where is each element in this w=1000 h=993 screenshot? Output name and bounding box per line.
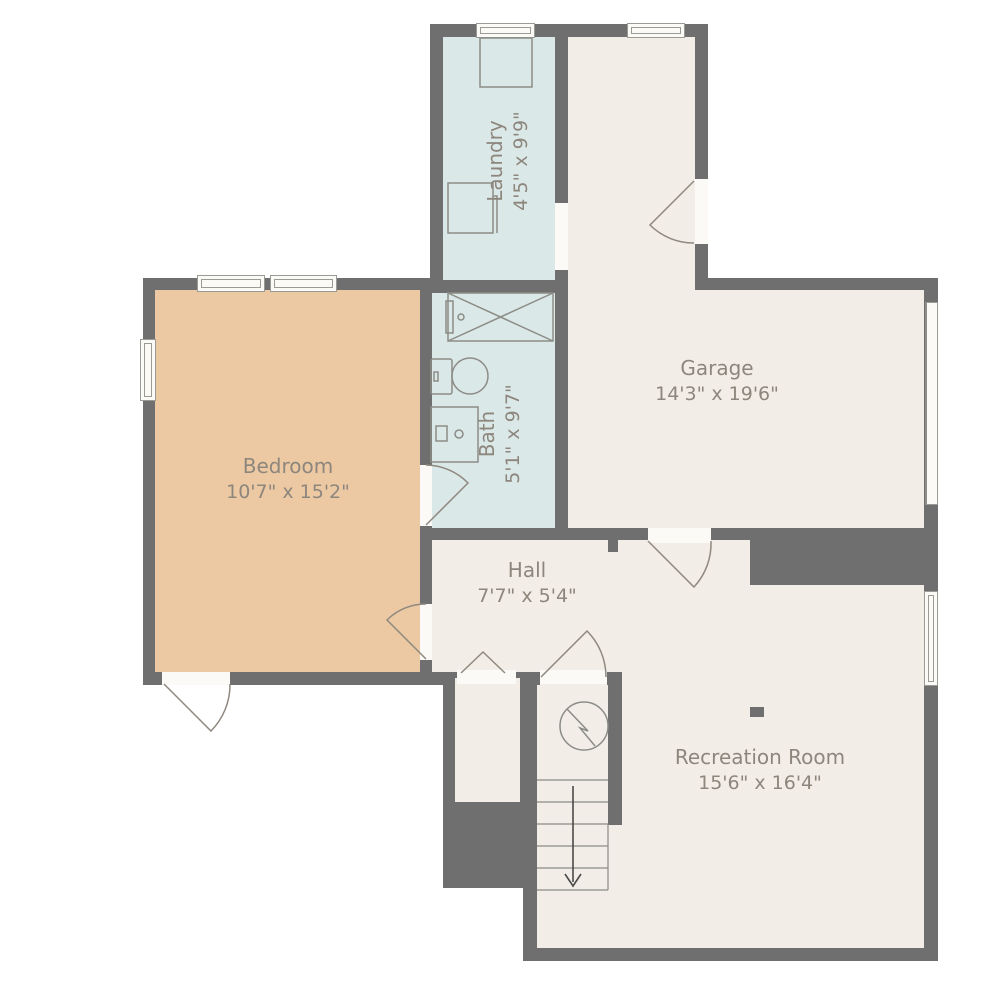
opening-stair-door xyxy=(540,670,607,684)
floor-garage-main xyxy=(566,288,926,530)
window-bedroom-top-1 xyxy=(197,275,265,292)
bath-name: Bath xyxy=(474,384,500,484)
bedroom-name: Bedroom xyxy=(226,453,350,479)
opening-closet-door xyxy=(457,670,516,684)
hall-name: Hall xyxy=(477,557,577,583)
wall-laundry-left xyxy=(430,24,443,293)
wall-stairblock-left xyxy=(443,672,455,888)
bedroom-dims: 10'7" x 15'2" xyxy=(226,479,350,505)
garage-door xyxy=(925,302,938,505)
garage-name: Garage xyxy=(655,355,779,381)
wall-recreation-block xyxy=(750,528,927,585)
recreation-name: Recreation Room xyxy=(675,744,845,770)
floor-closet xyxy=(455,678,520,802)
bedroom-exterior-door-swing-icon xyxy=(164,684,230,731)
opening-bedroom-exterior-door xyxy=(162,672,230,685)
wall-garage-ext-top xyxy=(695,278,938,290)
wall-stairwell-right xyxy=(608,672,622,825)
opening-laundry-garage xyxy=(555,203,568,270)
wall-recreation-bottom xyxy=(523,948,938,961)
label-bath: Bath 5'1" x 9'7" xyxy=(474,384,526,484)
wall-garage-right-upper xyxy=(695,24,708,290)
opening-garage-hall-door xyxy=(648,528,711,543)
wall-laundry-garage xyxy=(555,24,568,540)
recreation-dims: 15'6" x 16'4" xyxy=(675,770,845,796)
window-laundry xyxy=(476,23,535,38)
window-garage xyxy=(627,23,685,38)
wall-hall-stub xyxy=(608,539,618,552)
garage-dims: 14'3" x 19'6" xyxy=(655,381,779,407)
laundry-dims: 4'5" x 9'9" xyxy=(508,111,534,211)
floor-plan: Bedroom 10'7" x 15'2" Garage 14'3" x 19'… xyxy=(0,0,1000,993)
wall-stairblock-bottom xyxy=(455,802,537,888)
opening-bath-door xyxy=(420,465,432,526)
wall-recreation-left-lower xyxy=(523,885,537,961)
wall-laundry-bath xyxy=(430,280,568,293)
opening-garage-side-door xyxy=(695,179,708,244)
wall-closet-right xyxy=(520,672,537,804)
opening-bedroom-hall-door xyxy=(420,604,432,660)
label-hall: Hall 7'7" x 5'4" xyxy=(477,557,577,609)
hall-dims: 7'7" x 5'4" xyxy=(477,583,577,609)
laundry-name: Laundry xyxy=(482,111,508,211)
label-garage: Garage 14'3" x 19'6" xyxy=(655,355,779,407)
label-recreation: Recreation Room 15'6" x 16'4" xyxy=(675,744,845,796)
window-bedroom-left xyxy=(140,339,156,401)
bath-dims: 5'1" x 9'7" xyxy=(500,384,526,484)
window-bedroom-top-2 xyxy=(270,275,337,292)
label-bedroom: Bedroom 10'7" x 15'2" xyxy=(226,453,350,505)
window-recreation-right xyxy=(924,591,938,686)
label-laundry: Laundry 4'5" x 9'9" xyxy=(482,111,534,211)
floor-stairwell xyxy=(535,670,610,900)
